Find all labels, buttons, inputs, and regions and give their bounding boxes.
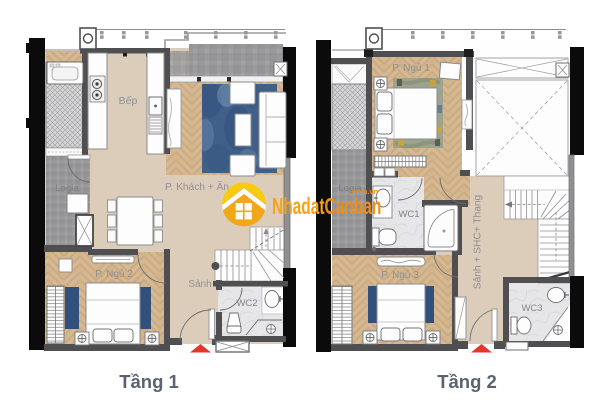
svg-text:Sảnh + SHC+ Thang: Sảnh + SHC+ Thang bbox=[473, 194, 484, 289]
svg-text:WC1: WC1 bbox=[398, 209, 419, 220]
svg-text:P. Khách + Ăn: P. Khách + Ăn bbox=[165, 180, 229, 193]
svg-text:P. Ngủ 2: P. Ngủ 2 bbox=[95, 268, 133, 280]
svg-text:WC3: WC3 bbox=[521, 303, 542, 314]
svg-text:Sảnh: Sảnh bbox=[188, 279, 211, 290]
svg-text:Tầng 1: Tầng 1 bbox=[119, 371, 179, 392]
svg-text:Tầng 2: Tầng 2 bbox=[437, 371, 497, 392]
svg-text:.com.vn: .com.vn bbox=[350, 187, 379, 196]
svg-text:NhadatCanban: NhadatCanban bbox=[272, 194, 381, 220]
svg-text:Logia: Logia bbox=[55, 183, 79, 194]
svg-text:WC2: WC2 bbox=[236, 298, 257, 309]
svg-text:P. Ngủ 1: P. Ngủ 1 bbox=[392, 62, 430, 74]
svg-text:P. Ngủ 3: P. Ngủ 3 bbox=[381, 269, 419, 281]
svg-text:Bếp: Bếp bbox=[119, 95, 138, 107]
